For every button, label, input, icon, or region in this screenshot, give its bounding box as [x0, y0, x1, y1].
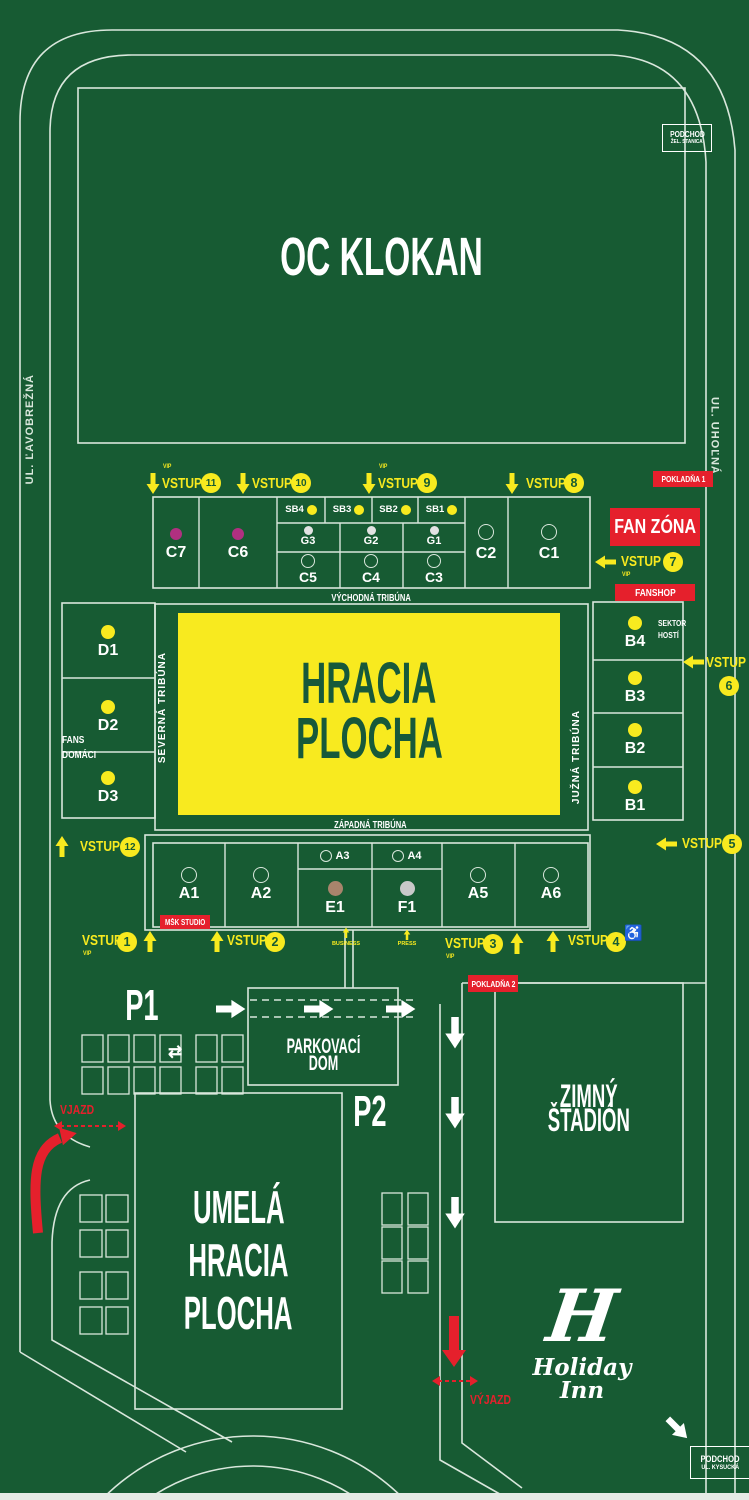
sector-F1-dot-icon — [400, 881, 415, 896]
entrance-7-arrow-left-icon — [595, 556, 616, 569]
sector-SB4: SB4 — [277, 497, 325, 523]
sector-E1-dot-icon — [328, 881, 343, 896]
umela-title-line3-text: PLOCHA — [184, 1290, 293, 1336]
sector-D2-dot-icon — [101, 700, 115, 714]
entrance-4-label: VSTUP — [568, 933, 608, 948]
parking-stall — [108, 1067, 129, 1094]
entrance-4-arrow-up-icon — [547, 931, 560, 952]
fan-zona-sign: FAN ZÓNA — [610, 508, 700, 546]
sector-B3-dot-icon — [628, 671, 642, 685]
entrance-5-arrow-left-icon — [656, 838, 677, 851]
sector-G2-dot-icon — [367, 526, 376, 535]
sector-SB4-dot-icon — [307, 505, 317, 515]
entrance-5-number: 5 — [722, 834, 742, 854]
entrance-3-label: VSTUP — [445, 936, 485, 951]
parking-stall — [80, 1230, 102, 1257]
sector-A2-dot-icon — [253, 867, 269, 883]
sector-B2-label: B2 — [595, 741, 675, 757]
tribune-north-text: SEVERNÁ TRIBÚNA — [158, 652, 168, 763]
parking-stall — [222, 1067, 243, 1094]
sector-A4-label: A4 — [407, 851, 421, 862]
entrance-2-arrow-up-icon — [211, 931, 224, 952]
parking-stall — [80, 1195, 102, 1222]
entrance-9-vip-tag: VIP — [379, 464, 387, 471]
sector-C5-dot-icon — [301, 554, 315, 568]
entrance-9-label: VSTUP — [378, 476, 418, 491]
umela-title-line2: HRACIA — [135, 1237, 342, 1283]
pokladna2-sign-text: POKLADŇA 2 — [471, 979, 515, 989]
sector-A1-label: A1 — [149, 886, 229, 902]
entrance-6-arrow-left-icon — [683, 656, 704, 669]
entrance-12-number: 12 — [120, 837, 140, 857]
sector-A5-dot-icon — [470, 867, 486, 883]
sector-C1-label: C1 — [509, 546, 589, 562]
sector-A4-dot-icon — [392, 850, 404, 862]
fans-domaci-label-line1: FANS — [62, 735, 84, 746]
sector-C4-dot-icon — [364, 554, 378, 568]
parking-stall — [382, 1261, 402, 1293]
parking-stall — [80, 1272, 102, 1299]
entrance-1-label: VSTUP — [82, 933, 122, 948]
sector-B3-label: B3 — [595, 689, 675, 705]
road-line — [462, 983, 522, 1488]
entrance-1-number: 1 — [117, 932, 137, 952]
sector-SB1: SB1 — [418, 497, 465, 523]
parking-stall — [106, 1307, 128, 1334]
entrance-3-arrow-up-icon — [511, 933, 524, 954]
oc-klokan-title-text: OC KLOKAN — [280, 230, 483, 284]
entrance-7-number: 7 — [663, 552, 683, 572]
msk-studio-sign: MŠK STUDIO — [160, 915, 210, 929]
entrance-6-number: 6 — [719, 676, 739, 696]
business-arrow-up-icon — [343, 928, 350, 939]
tribune-south-label: JUŽNÁ TRIBÚNA — [569, 675, 584, 840]
entrance-7-vip-tag: VIP — [622, 572, 630, 579]
sector-SB1-label: SB1 — [426, 505, 444, 515]
entrance-7-label: VSTUP — [621, 554, 661, 569]
sector-B4-label: B4 — [595, 634, 675, 650]
entrance-5-label: VSTUP — [682, 836, 722, 851]
parking-stall — [222, 1035, 243, 1062]
sector-F1-label: F1 — [367, 900, 447, 916]
entrance-12-label: VSTUP — [80, 839, 120, 854]
holiday-inn-logo: HHoliday Inn — [512, 1280, 652, 1402]
sector-C6-dot-icon — [232, 528, 244, 540]
sector-A6-dot-icon — [543, 867, 559, 883]
traffic-arrow-right-icon — [386, 1000, 415, 1018]
zimny-title-line2-text: ŠTADIÓN — [548, 1104, 630, 1136]
sector-A6-label: A6 — [511, 886, 591, 902]
sector-SB2-label: SB2 — [379, 505, 397, 515]
street-left-label: UL. ĽAVOBREŽNÁ — [22, 372, 38, 487]
sector-SB1-dot-icon — [447, 505, 457, 515]
fan-zona-sign-text: FAN ZÓNA — [614, 516, 696, 539]
parking-stall — [82, 1035, 103, 1062]
tribune-east-label-text: VÝCHODNÁ TRIBÚNA — [331, 593, 410, 604]
pokladna1-sign-text: POKLADŇA 1 — [661, 474, 705, 484]
entrance-4-wheelchair-icon: ♿ — [624, 926, 643, 941]
tribune-west-label-text: ZÁPADNÁ TRIBÚNA — [334, 820, 407, 831]
street-right-text: UL. UHOĽNÁ — [709, 397, 720, 475]
sektor-hosti-label-line1: SEKTOR — [658, 619, 686, 628]
entrance-10-number: 10 — [291, 473, 311, 493]
entrance-2-number: 2 — [265, 932, 285, 952]
zimny-title-line2: ŠTADIÓN — [495, 1104, 683, 1136]
fanshop-sign-text: FANSHOP — [635, 587, 676, 599]
entrance-10-arrow-down-icon — [237, 473, 250, 494]
entrance-1-arrow-up-icon — [144, 931, 157, 952]
sector-A3: A3 — [298, 843, 372, 869]
sector-SB2-dot-icon — [401, 505, 411, 515]
podchod-zel-stanica-sign: PODCHODŽEL. STANICA — [662, 124, 712, 152]
parking-stall — [408, 1227, 428, 1259]
vjazd-label: VJAZD — [60, 1103, 94, 1116]
sector-SB3: SB3 — [325, 497, 372, 523]
umela-title-line2-text: HRACIA — [188, 1237, 288, 1283]
oc-klokan-title: OC KLOKAN — [78, 230, 685, 284]
parking-stall — [134, 1067, 155, 1094]
sector-A3-dot-icon — [320, 850, 332, 862]
p2-label-text: P2 — [353, 1090, 386, 1134]
pokladna2-sign: POKLADŇA 2 — [468, 975, 518, 992]
tribune-west-label: ZÁPADNÁ TRIBÚNA — [270, 820, 470, 831]
traffic-arrow-right-icon — [304, 1000, 333, 1018]
sector-SB3-dot-icon — [354, 505, 364, 515]
sector-SB2: SB2 — [372, 497, 418, 523]
field-title-line1-text: HRACIA — [301, 655, 436, 713]
pokladna1-sign: POKLADŇA 1 — [653, 471, 713, 487]
sector-G1-dot-icon — [430, 526, 439, 535]
press-arrow-up-icon — [404, 930, 411, 941]
sector-B1-dot-icon — [628, 780, 642, 794]
holiday-inn-wordmark: Holiday Inn — [512, 1356, 652, 1402]
entry-curve-arrow — [35, 1138, 60, 1233]
parking-house-label-line2: DOM — [248, 1053, 398, 1074]
parking-stall — [382, 1227, 402, 1259]
entrance-6-label: VSTUP — [706, 655, 746, 670]
sector-C3-label: C3 — [394, 570, 474, 584]
entrance-10-label: VSTUP — [252, 476, 292, 491]
swap-arrows-icon: ⇄ — [168, 1043, 182, 1060]
entrance-9-number: 9 — [417, 473, 437, 493]
podchod-kysucka-sign: PODCHODUL. KYSUCKÁ — [690, 1446, 749, 1479]
entrance-11-arrow-down-icon — [147, 473, 160, 494]
parking-stall — [196, 1067, 217, 1094]
p1-label: P1 — [114, 984, 170, 1028]
holiday-inn-h-icon: H — [507, 1280, 657, 1352]
sector-B2-dot-icon — [628, 723, 642, 737]
fans-domaci-label-line2: DOMÁCI — [62, 750, 96, 761]
field-title-line2: PLOCHA — [178, 710, 560, 768]
parking-stall — [82, 1067, 103, 1094]
entrance-3-vip-tag: VIP — [446, 954, 454, 961]
vjazd-arrowhead-icon — [118, 1121, 126, 1131]
p2-label: P2 — [342, 1090, 398, 1134]
sector-C1-dot-icon — [541, 524, 557, 540]
parking-stall — [408, 1193, 428, 1225]
entrance-3-number: 3 — [483, 934, 503, 954]
sector-B4-dot-icon — [628, 616, 642, 630]
parking-stall — [106, 1230, 128, 1257]
sector-E1-label: E1 — [295, 900, 375, 916]
entrance-1-vip-tag: VIP — [83, 951, 91, 958]
entrance-8-number: 8 — [564, 473, 584, 493]
entrance-8-label: VSTUP — [526, 476, 566, 491]
sector-C2-dot-icon — [478, 524, 494, 540]
parking-stall — [106, 1195, 128, 1222]
parking-stall — [382, 1193, 402, 1225]
sector-SB3-label: SB3 — [333, 505, 351, 515]
umela-title-line3: PLOCHA — [135, 1290, 342, 1336]
podchod-kysucka-sign-line1: PODCHOD — [700, 1454, 739, 1464]
stadium-map: OC KLOKANHRACIAPLOCHAUMELÁHRACIAPLOCHAZI… — [0, 0, 749, 1500]
sector-SB4-label: SB4 — [285, 505, 303, 515]
sector-A4: A4 — [372, 843, 442, 869]
umela-title-line1: UMELÁ — [135, 1184, 342, 1230]
parking-stall — [106, 1272, 128, 1299]
sector-D3-label: D3 — [68, 789, 148, 805]
parking-stall — [196, 1035, 217, 1062]
entrance-11-vip-tag: VIP — [163, 464, 171, 471]
parking-stall — [80, 1307, 102, 1334]
vyjazd-label: VÝJAZD — [470, 1393, 511, 1406]
parking-stall — [408, 1261, 428, 1293]
sector-D1-dot-icon — [101, 625, 115, 639]
sector-C6-label: C6 — [198, 545, 278, 561]
msk-studio-sign-text: MŠK STUDIO — [165, 918, 205, 927]
parking-stall — [108, 1035, 129, 1062]
tribune-north-label: SEVERNÁ TRIBÚNA — [155, 628, 170, 788]
vyjazd-arrowhead-icon — [470, 1376, 478, 1386]
podchod-zel-stanica-sign-line1: PODCHOD — [670, 130, 705, 139]
entrance-9-arrow-down-icon — [363, 473, 376, 494]
vyjazd-arrowhead-icon — [432, 1376, 440, 1386]
tribune-east-label: VÝCHODNÁ TRIBÚNA — [271, 593, 471, 604]
podchod-zel-stanica-sign-line2: ŽEL. STANICA — [671, 139, 703, 145]
sector-A3-label: A3 — [335, 851, 349, 862]
sector-G3-dot-icon — [304, 526, 313, 535]
entrance-11-label: VSTUP — [162, 476, 202, 491]
traffic-arrow-right-icon — [216, 1000, 245, 1018]
entrance-8-arrow-down-icon — [506, 473, 519, 494]
umela-title-line1-text: UMELÁ — [193, 1184, 285, 1230]
press-gate-label: PRESS — [391, 942, 423, 948]
sector-D1-label: D1 — [68, 643, 148, 659]
field-title-line1: HRACIA — [178, 655, 560, 713]
p1-label-text: P1 — [125, 984, 158, 1028]
sector-D2-label: D2 — [68, 718, 148, 734]
business-gate-label: BUSINESS — [330, 942, 362, 948]
field-title-line2-text: PLOCHA — [296, 710, 443, 768]
sector-D3-dot-icon — [101, 771, 115, 785]
underpass-arrow-icon — [662, 1413, 693, 1444]
fanshop-sign: FANSHOP — [615, 584, 695, 601]
sector-B1-label: B1 — [595, 798, 675, 814]
parking-stall — [160, 1067, 181, 1094]
entrance-4-number: 4 — [606, 932, 626, 952]
parking-house-label-line2-text: DOM — [308, 1053, 337, 1074]
sector-C3-dot-icon — [427, 554, 441, 568]
sector-A5-label: A5 — [438, 886, 518, 902]
sector-A1-dot-icon — [181, 867, 197, 883]
parking-stall — [134, 1035, 155, 1062]
entrance-11-number: 11 — [201, 473, 221, 493]
roundabout-outer — [41, 1436, 465, 1500]
entrance-12-arrow-up-icon — [56, 836, 69, 857]
sector-A2-label: A2 — [221, 886, 301, 902]
street-left-text: UL. ĽAVOBREŽNÁ — [25, 374, 36, 484]
tribune-south-text: JUŽNÁ TRIBÚNA — [572, 710, 582, 804]
sector-C7-dot-icon — [170, 528, 182, 540]
entrance-2-label: VSTUP — [227, 933, 267, 948]
map-bottom-edge — [0, 1493, 749, 1500]
podchod-kysucka-sign-line2: UL. KYSUCKÁ — [701, 1464, 739, 1471]
